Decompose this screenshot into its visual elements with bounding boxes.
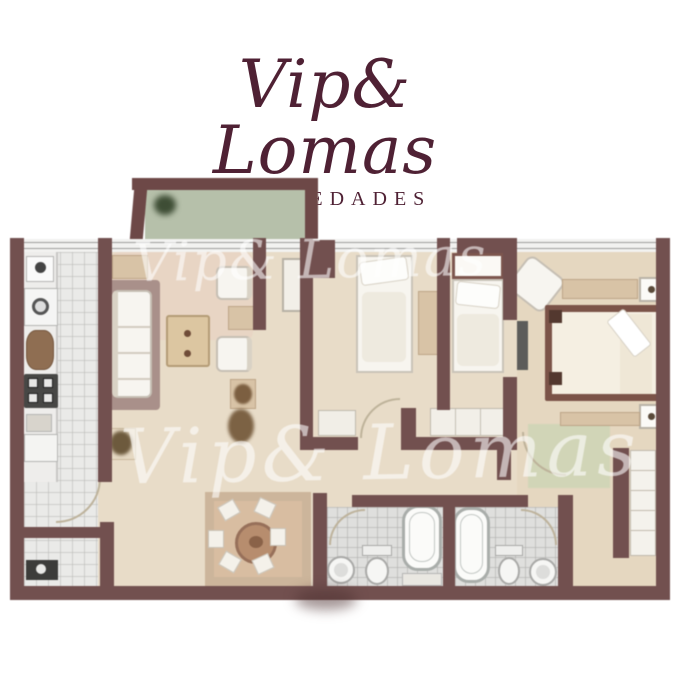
kitchen-counter-item [26, 414, 52, 432]
window-master [513, 239, 656, 252]
side-table [228, 306, 254, 330]
coffee-table-decor [184, 350, 191, 357]
stove-burner [28, 393, 38, 403]
wall-bath-left [313, 493, 327, 586]
wall-laundry [24, 527, 100, 538]
master-dresser [562, 279, 638, 299]
wall-bedroom2-master-upper [503, 238, 517, 320]
toilet-tank [362, 545, 392, 556]
nightstand-lamp [648, 286, 655, 293]
shadow-smudge [295, 588, 357, 610]
bed-post [549, 310, 562, 323]
apartment-floor-plan: Vip& Lomas Vip& Lomas [0, 0, 680, 674]
bed-blanket [457, 314, 499, 366]
nightstand-lamp [648, 413, 655, 420]
balcony-plant [154, 195, 176, 215]
wall-kitchen-divider [98, 238, 112, 482]
bed-post [549, 372, 562, 385]
armchair [216, 336, 252, 372]
master-door-leaf [517, 321, 528, 370]
floor-plan-page: Vip& Lomas PROPIEDADES [0, 0, 680, 674]
sofa-cushion-line [118, 326, 150, 328]
kitchen-basket [26, 330, 54, 370]
sink-basin [334, 563, 348, 577]
side-table-plant [234, 384, 252, 404]
shelf-line [631, 510, 655, 511]
wall-bath2-top [455, 495, 528, 507]
bathtub-inner [409, 512, 435, 562]
wall-bath-divider [443, 495, 455, 586]
window-kitchen [24, 239, 98, 252]
stove-burner [43, 378, 53, 388]
oven-door-circle [32, 298, 49, 315]
bath-vanity [402, 573, 442, 586]
watermark-top: Vip& Lomas [132, 225, 488, 294]
toilet [365, 557, 389, 585]
sofa [112, 290, 152, 398]
laundry-appliance-dial [36, 564, 46, 574]
wall-bath2-right [558, 495, 573, 586]
bathtub-inner [460, 514, 483, 574]
toilet-tank [495, 545, 523, 556]
stove-burner [28, 378, 38, 388]
sink-basin [536, 565, 550, 579]
window-small [112, 239, 135, 252]
coffee-table [166, 315, 210, 367]
wall-left [10, 238, 24, 600]
toilet [498, 557, 520, 585]
kitchen-sink-basin [35, 262, 46, 273]
dining-chair [208, 530, 224, 548]
sofa-cushion-line [118, 352, 150, 354]
wall-kitchen-divider-lower [100, 522, 114, 586]
shelf-line [631, 530, 655, 531]
watermark-middle: Vip& Lomas [119, 403, 641, 501]
dining-chair [270, 528, 286, 546]
coffee-table-decor [184, 330, 191, 337]
balcony-wall-top [132, 178, 318, 190]
sofa-cushion-line [118, 378, 150, 380]
wall-right [656, 238, 670, 600]
bed-blanket [362, 292, 406, 362]
stove-burner [43, 393, 53, 403]
refrigerator [24, 434, 58, 462]
dining-table-center [249, 536, 263, 548]
